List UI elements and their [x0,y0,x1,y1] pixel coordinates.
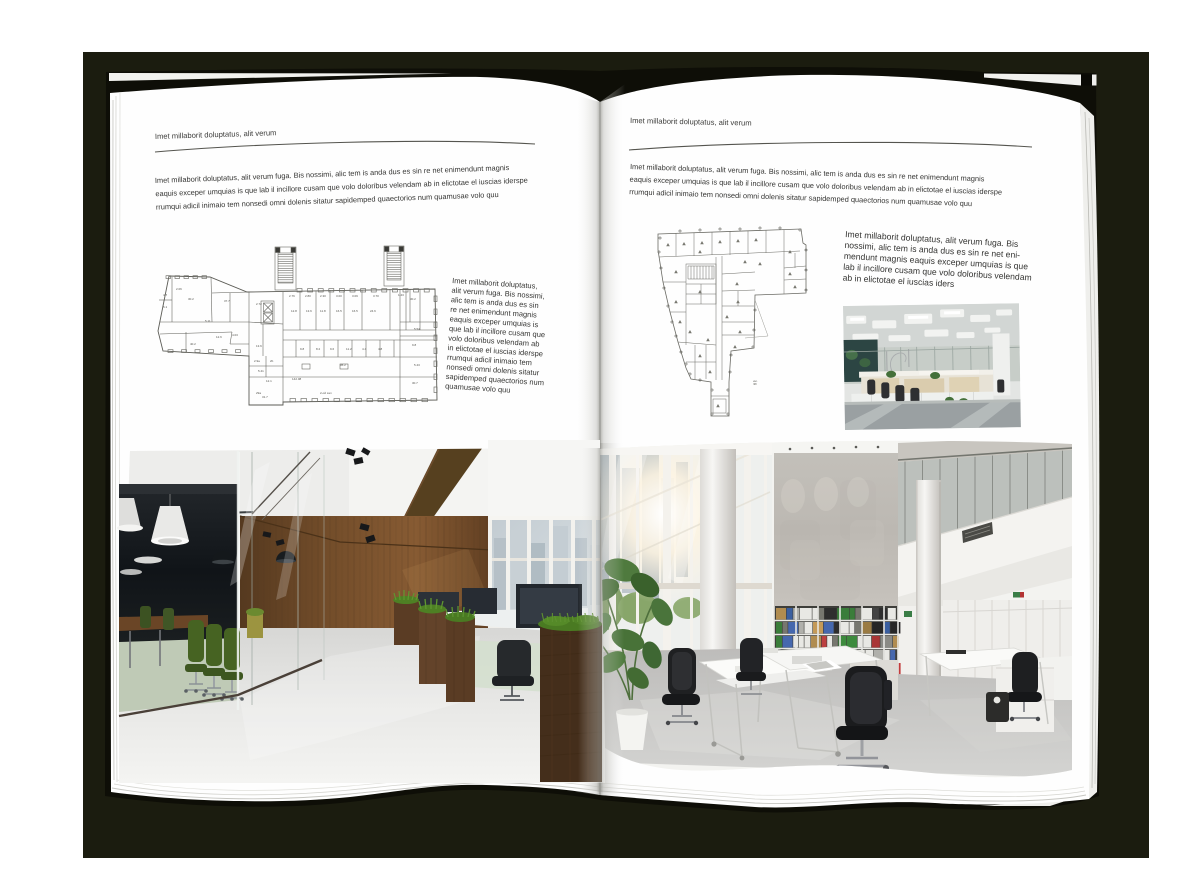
svg-text:5.43: 5.43 [414,363,420,367]
svg-text:9.6: 9.6 [330,347,335,351]
svg-text:3.00: 3.00 [336,294,342,298]
svg-text:11.8: 11.8 [320,309,326,313]
svg-text:3.09: 3.09 [352,294,358,298]
svg-text:9.8: 9.8 [412,343,417,347]
svg-text:31.7: 31.7 [262,395,268,399]
svg-text:2.30: 2.30 [320,294,326,298]
svg-text:16.5: 16.5 [352,309,358,313]
svg-text:30.7: 30.7 [412,381,418,385]
svg-text:13.6: 13.6 [306,309,312,313]
svg-text:2.76: 2.76 [289,294,295,298]
svg-text:/98: /98 [753,382,757,386]
svg-text:30.2: 30.2 [410,297,416,301]
svg-text:24.6: 24.6 [370,309,376,313]
svg-text:2.06: 2.06 [176,287,182,291]
svg-text:5.11: 5.11 [205,319,211,323]
svg-text:40.2: 40.2 [190,342,196,346]
svg-text:3.70: 3.70 [373,294,379,298]
svg-text:12.8: 12.8 [291,309,297,313]
svg-text:12.6: 12.6 [216,335,222,339]
svg-text:2-oй зал: 2-oй зал [320,391,332,395]
svg-text:30.2: 30.2 [188,297,194,301]
svg-text:11.2: 11.2 [346,347,352,351]
svg-text:13.6: 13.6 [256,344,262,348]
svg-text:5.1: 5.1 [163,305,168,309]
svg-text:37.7: 37.7 [224,299,230,303]
svg-text:29a: 29a [256,391,261,395]
svg-text:12.1: 12.1 [266,379,272,383]
svg-text:8.2: 8.2 [316,347,321,351]
svg-text:16.5: 16.5 [336,309,342,313]
svg-text:4.8: 4.8 [378,347,383,351]
svg-text:2b: 2b [270,359,274,363]
svg-text:5.41: 5.41 [258,369,264,373]
svg-text:1.43: 1.43 [398,293,404,297]
svg-text:4.03: 4.03 [232,333,238,337]
svg-text:5.54: 5.54 [414,327,420,331]
svg-text:95.2: 95.2 [340,363,346,367]
svg-text:2.72: 2.72 [256,302,262,306]
svg-text:142.08: 142.08 [292,377,302,381]
svg-text:2.80: 2.80 [305,294,311,298]
svg-text:4.7: 4.7 [163,293,168,297]
svg-text:9.8: 9.8 [300,347,305,351]
svg-text:2.9a: 2.9a [254,359,260,363]
svg-text:4.4: 4.4 [362,347,367,351]
